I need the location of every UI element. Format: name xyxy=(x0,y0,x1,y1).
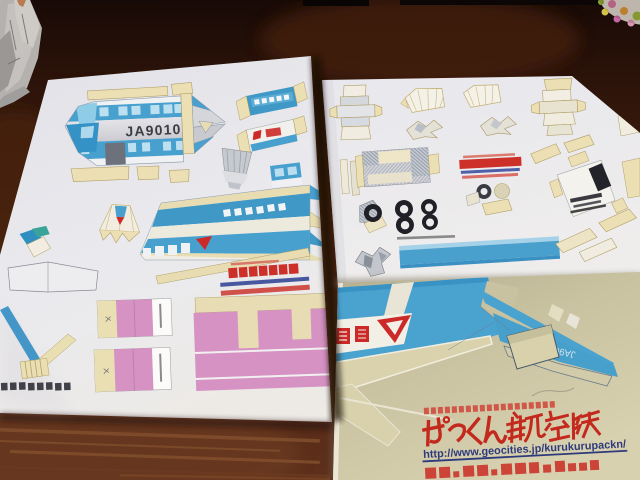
svg-text:JA9010: JA9010 xyxy=(125,121,182,139)
